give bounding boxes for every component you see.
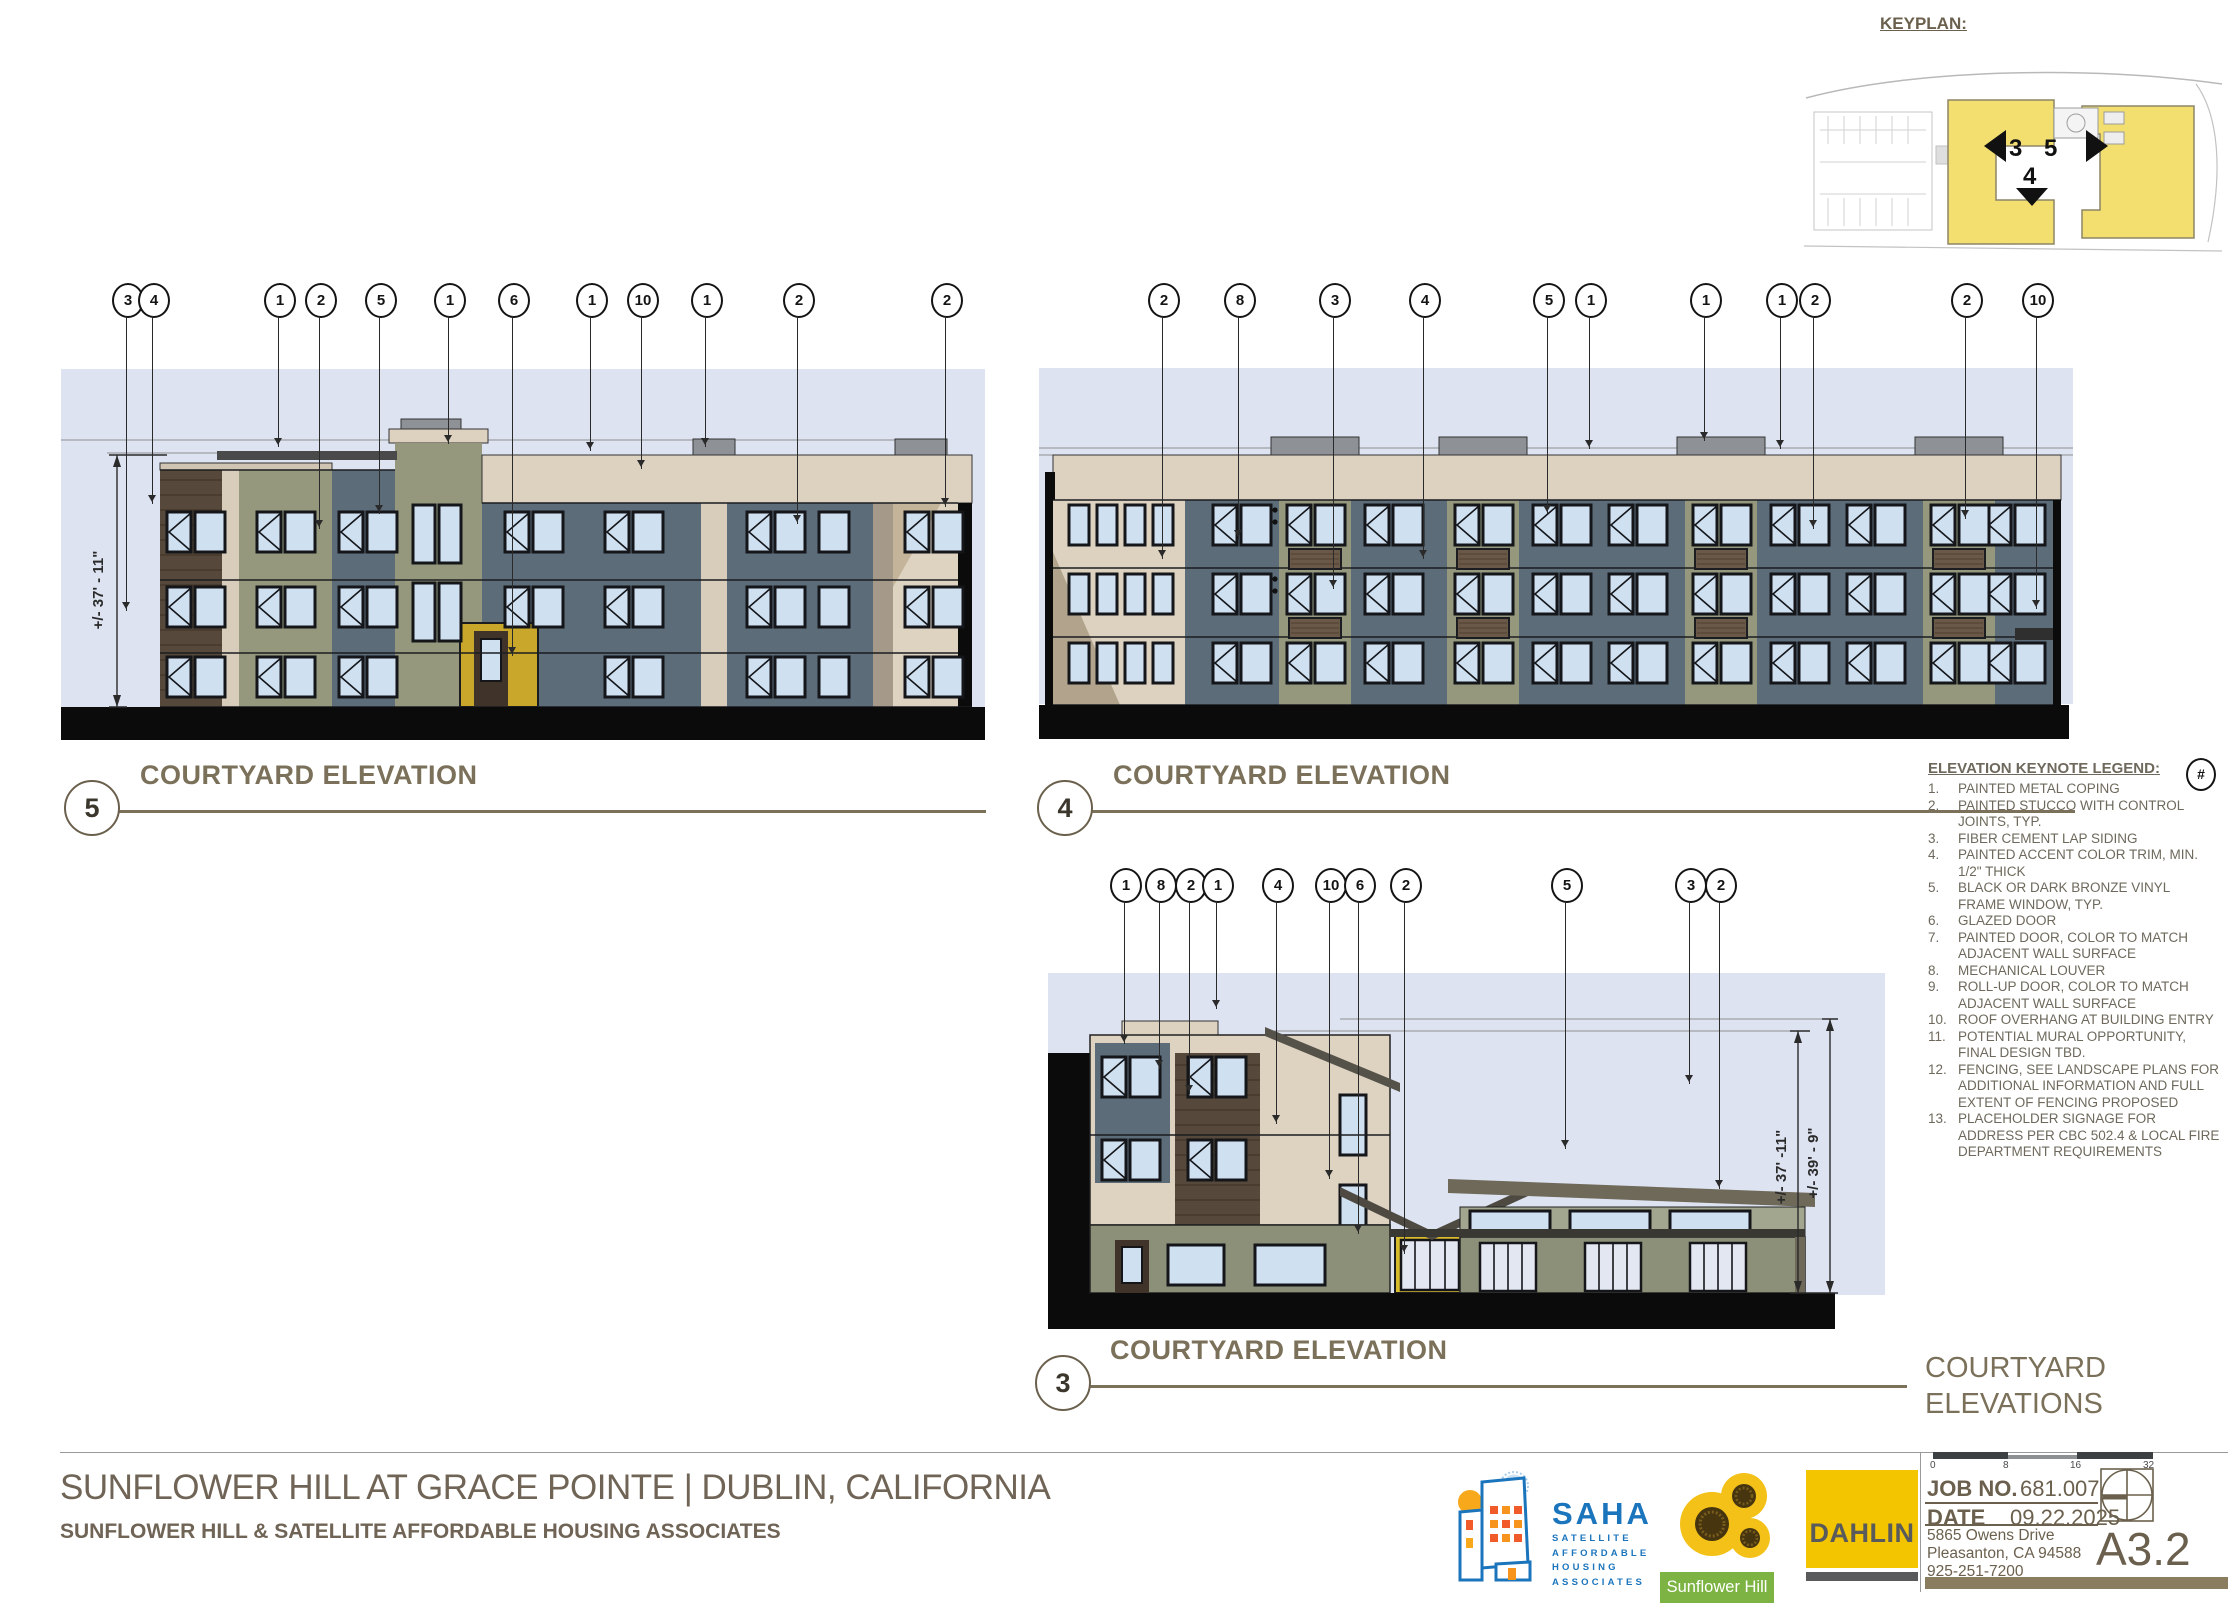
- elevation-keynote-legend: ELEVATION KEYNOTE LEGEND: 1.PAINTED META…: [1928, 760, 2220, 1161]
- legend-item: 8.MECHANICAL LOUVER: [1928, 963, 2220, 980]
- scale-bar-segment: [1933, 1452, 2008, 1459]
- legend-item: 12.FENCING, SEE LANDSCAPE PLANS FOR ADDI…: [1928, 1062, 2220, 1112]
- elevation-3-title: COURTYARD ELEVATION: [1110, 1335, 1448, 1366]
- divider: [1920, 1452, 1921, 1592]
- keynote-callout: 10: [627, 283, 657, 318]
- sunflower-hill-logo-icon: [1662, 1466, 1774, 1572]
- dahlin-logo: DAHLIN: [1806, 1470, 1918, 1568]
- scale-tick: 16: [2070, 1460, 2081, 1471]
- keynote-callout: 5: [1533, 283, 1563, 318]
- keynote-callout: 5: [365, 283, 395, 318]
- keynote-callout: 5: [1551, 868, 1581, 903]
- keynote-callout: 6: [1344, 868, 1374, 903]
- keynote-callout: 6: [498, 283, 528, 318]
- elevation-3-number: 3: [1035, 1355, 1091, 1411]
- keynote-symbol: #: [2186, 758, 2216, 791]
- keynote-callout: 3: [1675, 868, 1705, 903]
- drawing-sheet: KEYPLAN: 3 5 4: [0, 0, 2230, 1618]
- keynote-callout: 2: [1705, 868, 1735, 903]
- sheet-title: COURTYARD ELEVATIONS: [1925, 1350, 2106, 1422]
- keynote-callout: 1: [691, 283, 721, 318]
- elevation-4-drawing: [1035, 352, 2080, 747]
- legend-item: 1.PAINTED METAL COPING: [1928, 781, 2220, 798]
- keynote-callout: 8: [1145, 868, 1175, 903]
- svg-text:3: 3: [2009, 135, 2022, 162]
- client-line: SUNFLOWER HILL & SATELLITE AFFORDABLE HO…: [60, 1520, 781, 1544]
- keynote-callout: 2: [1799, 283, 1829, 318]
- legend-item: 10.ROOF OVERHANG AT BUILDING ENTRY: [1928, 1012, 2220, 1029]
- legend-item: 2.PAINTED STUCCO WITH CONTROL JOINTS, TY…: [1928, 798, 2220, 831]
- keynote-callout: 2: [1175, 868, 1205, 903]
- keynote-callout: 1: [1766, 283, 1796, 318]
- legend-item: 3.FIBER CEMENT LAP SIDING: [1928, 831, 2220, 848]
- divider: [1925, 1524, 2098, 1526]
- title-rule: [1089, 1385, 1907, 1388]
- keynote-callout: 1: [1575, 283, 1605, 318]
- keyplan-drawing: 3 5 4: [1798, 50, 2228, 262]
- keynote-callout: 2: [931, 283, 961, 318]
- north-arrow-icon: [2100, 1468, 2154, 1522]
- sunflower-hill-logo-banner: Sunflower Hill: [1660, 1572, 1774, 1603]
- scale-tick: 8: [2003, 1460, 2009, 1471]
- elevation-5-drawing: +/- 37' - 11": [57, 355, 987, 745]
- divider: [60, 1452, 2228, 1453]
- svg-text:5: 5: [2044, 135, 2057, 162]
- keynote-callout: 1: [434, 283, 464, 318]
- elevation-4-title: COURTYARD ELEVATION: [1113, 760, 1451, 791]
- legend-item: 5.BLACK OR DARK BRONZE VINYL FRAME WINDO…: [1928, 880, 2220, 913]
- legend-item: 7.PAINTED DOOR, COLOR TO MATCH ADJACENT …: [1928, 930, 2220, 963]
- keynote-callout: 1: [264, 283, 294, 318]
- keynote-callout: 1: [1202, 868, 1232, 903]
- keyplan-label: KEYPLAN:: [1880, 14, 1967, 34]
- firm-address: 5865 Owens Drive Pleasanton, CA 94588 92…: [1927, 1527, 2081, 1581]
- elevation-5-number: 5: [64, 780, 120, 836]
- dahlin-logo-bar: [1806, 1572, 1918, 1581]
- saha-logo-text: SAHA SATELLITE AFFORDABLE HOUSING ASSOCI…: [1552, 1496, 1652, 1590]
- svg-text:4: 4: [2023, 163, 2037, 190]
- keynote-callout: 1: [1110, 868, 1140, 903]
- elevation-4-number: 4: [1037, 780, 1093, 836]
- job-no-label: JOB NO.: [1927, 1476, 2017, 1502]
- title-rule: [118, 810, 986, 813]
- keynote-callout: 2: [1390, 868, 1420, 903]
- keynote-callout: 8: [1224, 283, 1254, 318]
- elevation-3-drawing: +/- 37' -11" +/- 39' - 9": [1040, 935, 1890, 1335]
- project-title: SUNFLOWER HILL AT GRACE POINTE | DUBLIN,…: [60, 1468, 1050, 1508]
- keynote-callout: 1: [1690, 283, 1720, 318]
- elevation-5-title: COURTYARD ELEVATION: [140, 760, 478, 791]
- keynote-callout: 4: [1262, 868, 1292, 903]
- keynote-callout: 10: [1315, 868, 1345, 903]
- scale-bar-segment: [2008, 1455, 2077, 1459]
- legend-item: 4.PAINTED ACCENT COLOR TRIM, MIN. 1/2" T…: [1928, 847, 2220, 880]
- keynote-callout: 1: [576, 283, 606, 318]
- job-no-value: 681.007: [2020, 1476, 2100, 1502]
- keynote-callout: 2: [1148, 283, 1178, 318]
- scale-tick: 0: [1930, 1460, 1936, 1471]
- legend-title: ELEVATION KEYNOTE LEGEND:: [1928, 760, 2160, 777]
- svg-text:+/- 37' - 11": +/- 37' - 11": [90, 551, 107, 630]
- legend-item: 13.PLACEHOLDER SIGNAGE FOR ADDRESS PER C…: [1928, 1111, 2220, 1161]
- keynote-callout: 2: [305, 283, 335, 318]
- keynote-callout: 10: [2022, 283, 2052, 318]
- svg-text:+/- 39' - 9": +/- 39' - 9": [1805, 1127, 1822, 1198]
- legend-item: 6.GLAZED DOOR: [1928, 913, 2220, 930]
- saha-logo-icon: [1452, 1468, 1548, 1586]
- keynote-callout: 2: [1951, 283, 1981, 318]
- svg-text:+/- 37' -11": +/- 37' -11": [1773, 1130, 1790, 1204]
- legend-item: 9.ROLL-UP DOOR, COLOR TO MATCH ADJACENT …: [1928, 979, 2220, 1012]
- keynote-callout: 4: [1409, 283, 1439, 318]
- divider: [1925, 1502, 2098, 1504]
- titleblock-bar: [1925, 1577, 2228, 1589]
- keynote-callout: 3: [1319, 283, 1349, 318]
- keynote-callout: 4: [138, 283, 168, 318]
- scale-bar-segment: [2077, 1452, 2153, 1459]
- legend-item: 11.POTENTIAL MURAL OPPORTUNITY, FINAL DE…: [1928, 1029, 2220, 1062]
- keynote-callout: 2: [783, 283, 813, 318]
- sheet-number: A3.2: [2096, 1522, 2191, 1576]
